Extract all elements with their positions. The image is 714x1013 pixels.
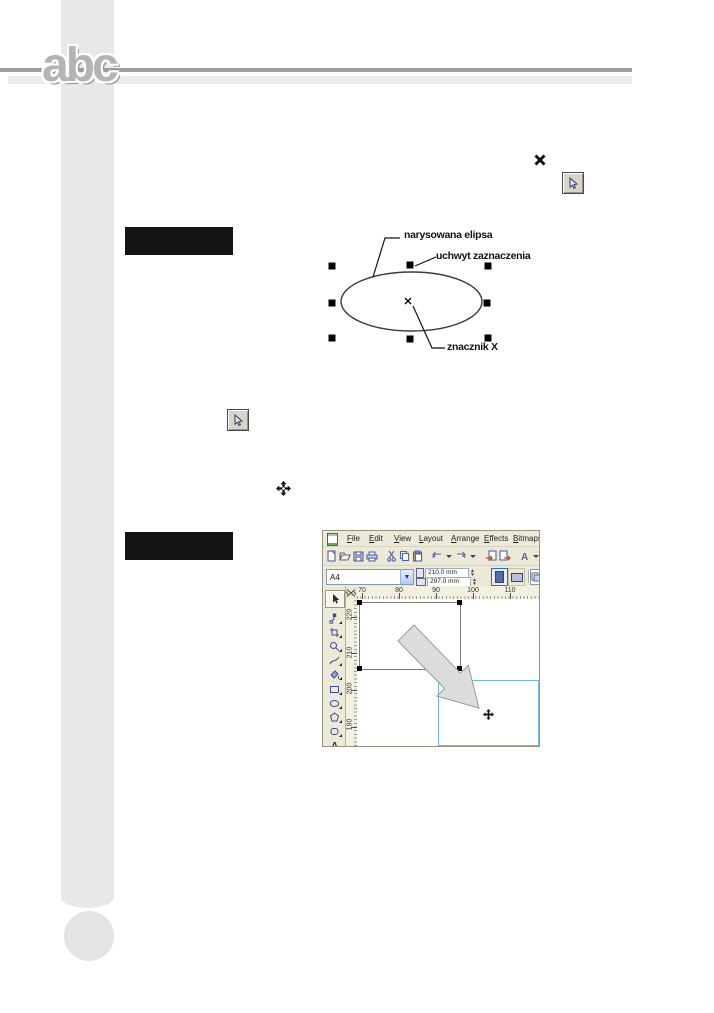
svg-text:A: A [521,552,528,562]
vruler-220: 220 [347,607,354,623]
ellipse-icon [329,698,340,709]
drag-direction-arrow [357,599,539,746]
pick-tool-button-symbol[interactable] [562,172,584,194]
polygon-tool[interactable] [325,711,343,724]
menu-edit[interactable]: Edit [369,534,383,543]
pick-tool-button-symbol-2[interactable] [227,409,249,431]
toolbar-separator [528,570,529,583]
figure-caption-bar-2 [125,532,233,560]
svg-text:A: A [331,741,338,747]
property-bar: A4 ▼ 210.0 mm ▲▼ 297.0 mm ▲▼ [323,567,539,587]
zoom-icon [329,641,340,652]
move-cursor-icon [483,709,494,720]
basic-shapes-icon [329,726,340,737]
open-icon[interactable] [339,550,351,563]
landscape-mini-icon [416,578,426,586]
combo-dropdown-icon[interactable]: ▼ [400,570,413,584]
drawn-ellipse [341,272,482,331]
portrait-button[interactable] [491,568,508,586]
menu-file[interactable]: File [347,534,360,543]
pick-icon [330,593,341,605]
hruler-110: 110 [502,587,518,594]
drawing-canvas[interactable] [357,599,539,746]
label-uchwyt-zaznaczenia: uchwyt zaznaczenia [436,250,530,262]
cursor-arrow-icon [232,414,244,427]
units-combo[interactable] [530,569,540,585]
portrait-icon [495,571,504,583]
zoom-tool[interactable] [325,640,343,653]
units-pages-icon [531,572,540,582]
undo-icon[interactable] [431,550,443,563]
portrait-mini-icon [416,568,424,578]
smart-fill-icon [329,669,340,680]
application-launcher-dropdown-icon[interactable] [533,555,539,558]
move-cursor-icon [276,481,291,496]
menu-bitmaps[interactable]: Bitmaps [513,534,540,543]
abc-series-logo: abc [42,42,116,90]
menu-effects[interactable]: Effects [484,534,508,543]
rectangle-icon [329,684,340,695]
cursor-arrow-icon [567,177,579,190]
width-spinner[interactable]: ▲▼ [470,569,475,577]
menu-layout[interactable]: Layout [419,534,443,543]
paper-height-field[interactable]: 297.0 mm [427,577,471,587]
freehand-tool[interactable] [325,654,343,667]
save-icon[interactable] [353,550,364,563]
toolbox: A [323,586,346,746]
redo-icon[interactable] [455,550,467,563]
print-icon[interactable] [366,550,378,563]
polygon-icon [329,712,340,723]
figure-caption-bar-1 [125,227,233,255]
new-icon[interactable] [326,550,337,563]
paper-size-value: A4 [327,573,400,582]
pick-tool[interactable] [325,590,345,608]
close-x-icon [533,153,547,167]
paper-height-row: 297.0 mm ▲▼ [416,577,477,586]
shape-tool[interactable] [325,612,343,625]
landscape-button[interactable] [508,568,525,586]
crop-tool[interactable] [325,626,343,639]
cut-icon[interactable] [386,550,397,563]
ellipse-tool[interactable] [325,697,343,710]
vruler-200: 200 [347,681,354,697]
label-narysowana-elipsa: narysowana elipsa [404,229,492,241]
ellipse-figure [325,225,545,360]
undo-dropdown-icon[interactable] [446,555,452,558]
center-x-marker [405,298,411,304]
text-icon: A [329,740,340,747]
horizontal-ruler: 70 80 90 100 110 [357,586,539,600]
redo-dropdown-icon[interactable] [470,555,476,558]
menu-view[interactable]: View [394,534,411,543]
vruler-210: 210 [347,645,354,661]
page-margin-dot [64,911,114,961]
smart-fill-tool[interactable] [325,668,343,681]
shape-icon [329,613,340,624]
application-launcher-icon[interactable]: A [519,550,530,563]
hruler-70: 70 [354,587,370,594]
landscape-icon [511,573,523,582]
text-tool[interactable]: A [325,739,343,747]
menu-bar: File Edit View Layout Arrange Effects Bi… [323,531,539,547]
paper-size-combo[interactable]: A4 ▼ [326,569,414,585]
basic-shapes-tool[interactable] [325,725,343,738]
page-margin-bar [61,0,114,908]
coreldraw-window: File Edit View Layout Arrange Effects Bi… [322,530,540,747]
menu-arrange[interactable]: Arrange [451,534,479,543]
vruler-190: 190 [347,717,354,733]
document-app-icon [327,533,338,546]
crop-icon [329,627,340,638]
freehand-icon [329,655,340,666]
standard-toolbar: A [323,547,539,566]
copy-icon[interactable] [399,550,410,563]
rectangle-tool[interactable] [325,683,343,696]
hruler-90: 90 [428,587,444,594]
hruler-80: 80 [391,587,407,594]
label-znacznik-x: znacznik X [447,341,498,353]
export-icon[interactable] [499,550,511,563]
hruler-100: 100 [465,587,481,594]
height-spinner[interactable]: ▲▼ [472,578,477,586]
import-icon[interactable] [485,550,497,563]
paste-icon[interactable] [412,550,423,563]
